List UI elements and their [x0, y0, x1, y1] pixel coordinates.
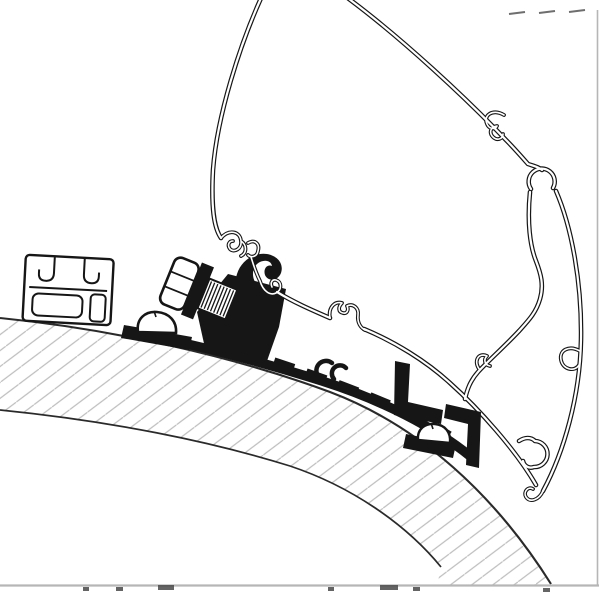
profile-outer-arc: [345, 0, 542, 170]
profile-bottom-wall: [277, 292, 330, 318]
screw-dome-front-cap: [138, 312, 176, 333]
profile-outer-arc: [543, 191, 581, 491]
top-dash-mark: [539, 11, 555, 13]
adapter-clip-prong-right: [332, 365, 346, 379]
screw-dome-rear: [418, 423, 450, 443]
profile-front-curl: [221, 232, 246, 256]
screw-dome-rear-cap: [418, 424, 450, 443]
awning-adapter-diagram: [0, 0, 600, 600]
profile-wall: [212, 0, 262, 238]
top-dash-mark: [569, 10, 585, 12]
screw-dome-front: [138, 311, 176, 333]
top-dash-mark: [509, 12, 525, 14]
wall-mount-rail-profile: [22, 255, 113, 326]
profile-inner-wall: [519, 192, 542, 331]
profile-strut: [465, 331, 519, 399]
